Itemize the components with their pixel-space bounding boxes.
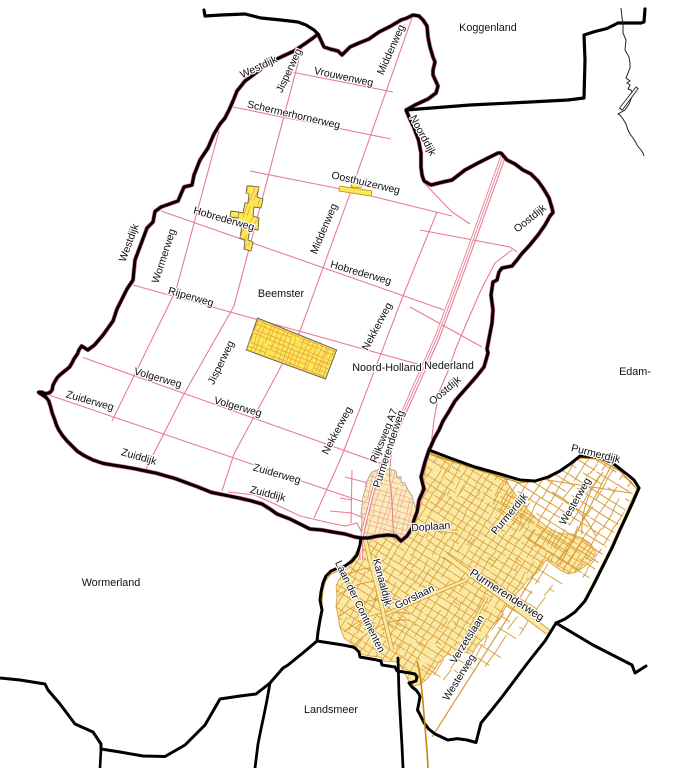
svg-text:Nederland: Nederland <box>424 360 474 372</box>
svg-text:Koggenland: Koggenland <box>459 22 517 34</box>
svg-text:Edam-: Edam- <box>619 366 651 378</box>
svg-text:Landsmeer: Landsmeer <box>304 704 358 716</box>
svg-text:Wormerland: Wormerland <box>82 577 141 589</box>
svg-text:Noord-Holland: Noord-Holland <box>352 362 422 374</box>
svg-text:Beemster: Beemster <box>258 288 305 300</box>
